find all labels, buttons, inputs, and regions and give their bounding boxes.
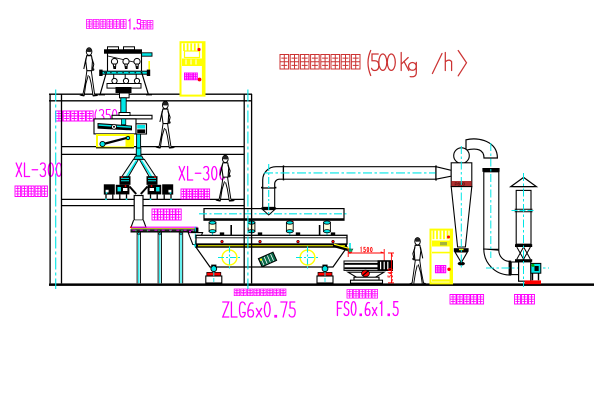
svg-text:P800: P800 xyxy=(455,181,466,186)
